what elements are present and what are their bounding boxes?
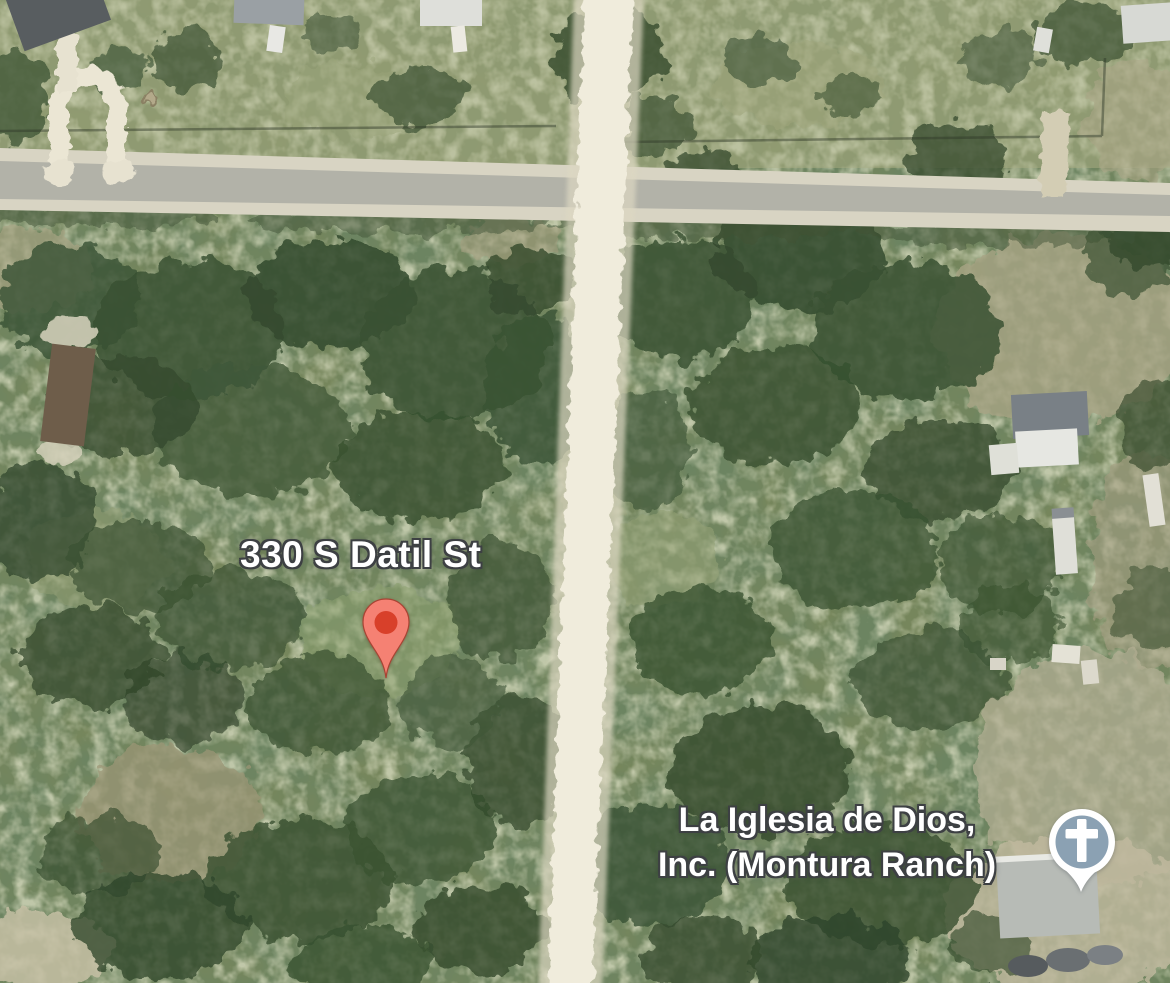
address-label: 330 S Datil St	[240, 534, 481, 576]
church-poi-label[interactable]: La Iglesia de Dios, Inc. (Montura Ranch)	[577, 798, 1077, 888]
church-icon-cross-vertical	[1077, 819, 1087, 862]
pin-body	[363, 599, 409, 678]
church-icon-cross-horizontal	[1066, 829, 1099, 839]
church-cross-icon[interactable]	[1043, 805, 1121, 893]
church-poi-label-line1: La Iglesia de Dios,	[577, 798, 1077, 843]
satellite-map-view[interactable]: 330 S Datil St La Iglesia de Dios, Inc. …	[0, 0, 1170, 983]
pin-center-dot	[375, 611, 398, 634]
red-place-pin-icon[interactable]	[362, 598, 410, 680]
church-icon-tail	[1062, 867, 1101, 892]
church-poi-label-line2: Inc. (Montura Ranch)	[577, 843, 1077, 888]
